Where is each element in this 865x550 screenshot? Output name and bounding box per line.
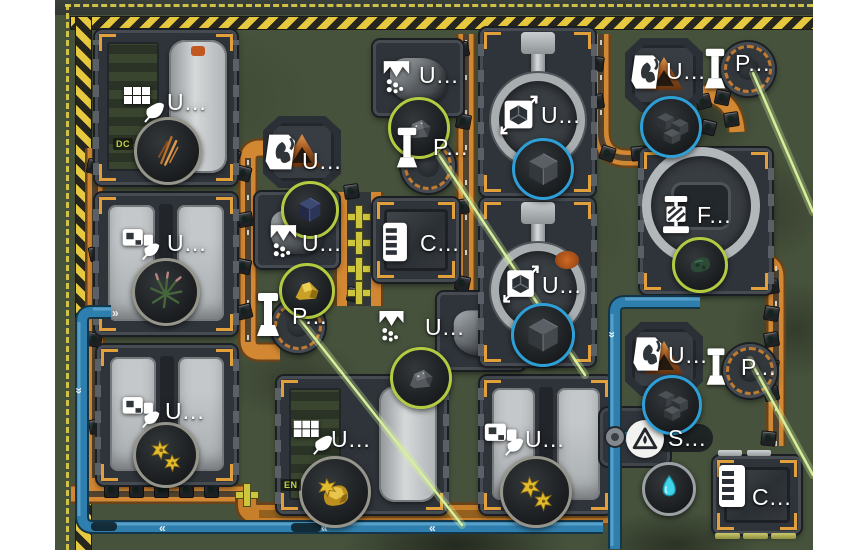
greenhouse-4-status-badge: EN bbox=[281, 479, 301, 491]
greenhouse-5-label: U... bbox=[525, 426, 565, 453]
storage-1-label: C... bbox=[420, 230, 460, 257]
press-3-label: P... bbox=[735, 50, 771, 77]
stone-2[interactable] bbox=[390, 347, 452, 409]
container-bottom-slat bbox=[771, 533, 796, 539]
harvester-leaf-icon bbox=[119, 220, 163, 264]
harvester-leaf-icon bbox=[119, 388, 163, 432]
big-cube-icon bbox=[522, 148, 565, 191]
factory-map[interactable]: » « « « « « U...DCU.. bbox=[55, 0, 813, 550]
piston-icon bbox=[705, 344, 727, 390]
piston-icon bbox=[255, 289, 281, 341]
crusher-1-label: U... bbox=[302, 230, 342, 257]
smelter-3-label: U... bbox=[668, 342, 708, 369]
packer-icon bbox=[499, 262, 543, 306]
rock-icon bbox=[400, 357, 443, 400]
furnace-icon bbox=[627, 48, 669, 96]
piston-icon bbox=[703, 44, 727, 94]
container-bottom-slat bbox=[715, 533, 740, 539]
smelter-1-label: U... bbox=[302, 148, 342, 175]
storage-2-label: C... bbox=[752, 484, 792, 511]
solar-leaf-icon bbox=[289, 414, 335, 460]
solar-leaf-icon bbox=[119, 80, 167, 128]
water-pump-1-label: S... bbox=[668, 425, 707, 452]
furnace-icon bbox=[629, 330, 671, 378]
container-icon bbox=[380, 220, 410, 264]
filter-1-label: F... bbox=[697, 202, 732, 229]
press-4-label: P... bbox=[741, 354, 777, 381]
cube-2[interactable] bbox=[511, 303, 575, 367]
piston-icon bbox=[395, 124, 419, 172]
water-drop-icon bbox=[651, 471, 687, 507]
press-1-label: P... bbox=[292, 303, 328, 330]
crusher-icon bbox=[379, 54, 417, 100]
cube-cluster-icon bbox=[650, 106, 693, 149]
green-clump-icon bbox=[681, 246, 719, 284]
gold-ore-plant[interactable] bbox=[299, 456, 371, 528]
flowers-icon bbox=[511, 467, 561, 517]
spiky-plant-icon bbox=[142, 268, 189, 315]
unpacker-2-label: U... bbox=[542, 272, 582, 299]
flowers-icon bbox=[143, 432, 189, 478]
smelter-2-label: U... bbox=[666, 58, 706, 85]
big-cube-icon bbox=[521, 313, 565, 357]
greenhouse-2-label: U... bbox=[167, 230, 207, 257]
packer-icon bbox=[496, 92, 542, 138]
filter-press-icon bbox=[657, 192, 695, 238]
greenhouse-1-label: U... bbox=[167, 89, 207, 116]
biomass[interactable] bbox=[672, 237, 728, 293]
container-top-slat bbox=[718, 450, 742, 456]
copper-needles-icon bbox=[144, 127, 191, 174]
greenhouse-1-status-badge: DC bbox=[113, 138, 133, 150]
crusher-3-label: U... bbox=[425, 314, 465, 341]
game-viewport: » « « « « « U...DCU.. bbox=[0, 0, 865, 550]
crusher-icon bbox=[375, 304, 411, 348]
pump-icon bbox=[632, 426, 658, 452]
gold-ore-flower-icon bbox=[310, 467, 360, 517]
cube-1[interactable] bbox=[512, 138, 574, 200]
yellow-flower-2[interactable] bbox=[500, 456, 572, 528]
container-icon bbox=[717, 462, 747, 510]
container-bottom-slat bbox=[743, 533, 768, 539]
crusher-icon bbox=[266, 218, 304, 264]
greenhouse-4-label: U... bbox=[331, 426, 371, 453]
crusher-2-label: U... bbox=[419, 62, 459, 89]
furnace-icon bbox=[261, 128, 305, 176]
cube-cluster-icon bbox=[651, 384, 692, 425]
cube-stack-1[interactable] bbox=[640, 96, 702, 158]
harvester-leaf-icon bbox=[481, 414, 527, 460]
greenhouse-3-label: U... bbox=[165, 398, 205, 425]
container-top-slat bbox=[747, 450, 771, 456]
press-2-label: P... bbox=[433, 134, 469, 161]
water[interactable] bbox=[642, 462, 696, 516]
unpacker-1-label: U... bbox=[541, 102, 581, 129]
spike-plant[interactable] bbox=[132, 258, 200, 326]
